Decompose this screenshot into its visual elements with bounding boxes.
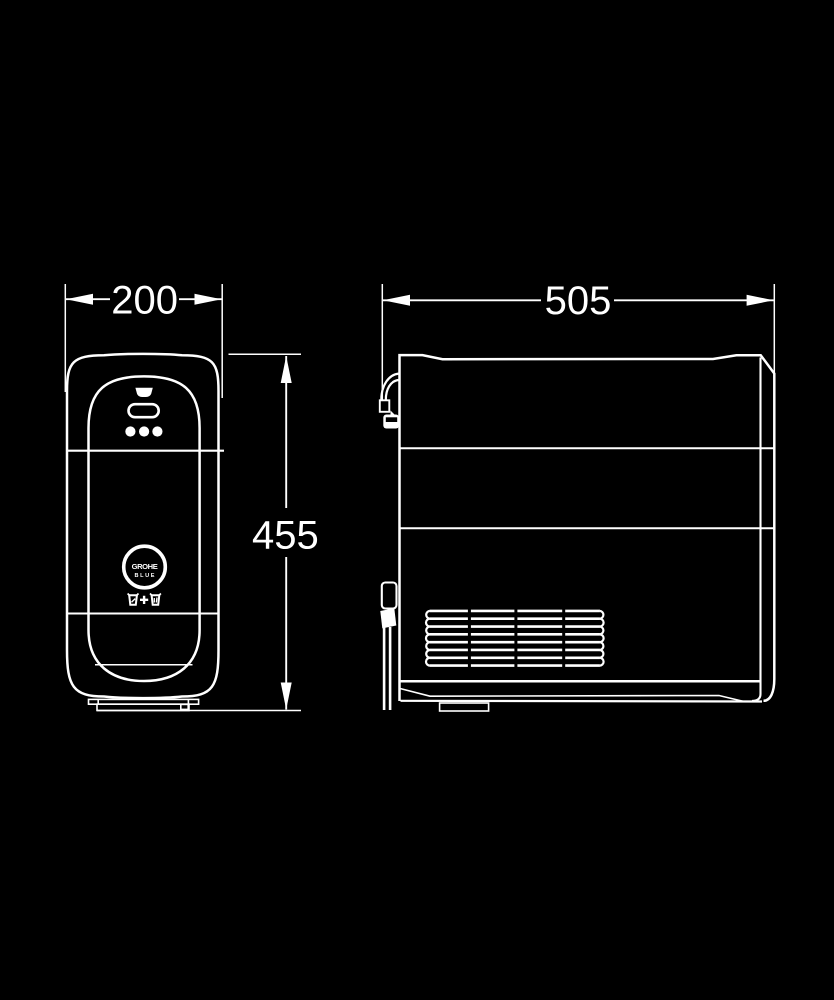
svg-text:200: 200 xyxy=(111,279,178,323)
svg-text:505: 505 xyxy=(545,279,612,323)
svg-text:GROHE: GROHE xyxy=(132,562,158,571)
svg-text:BLUE: BLUE xyxy=(134,573,156,579)
svg-text:455: 455 xyxy=(252,513,319,557)
